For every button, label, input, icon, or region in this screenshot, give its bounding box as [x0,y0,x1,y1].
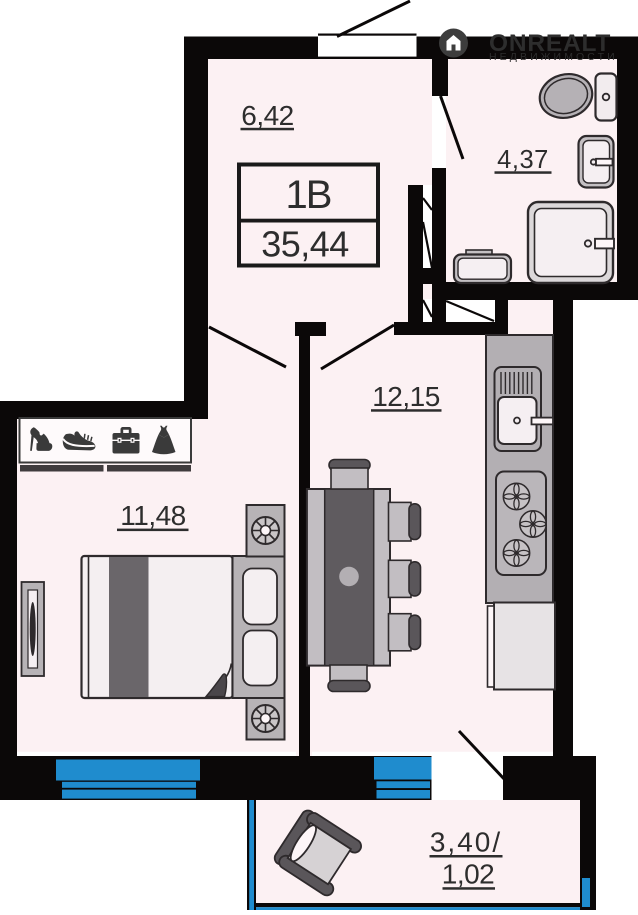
svg-text:35,44: 35,44 [261,224,349,265]
svg-text:6,42: 6,42 [241,100,294,131]
svg-text:НЕДВИЖИМОСТИ: НЕДВИЖИМОСТИ [489,51,618,63]
svg-text:11,48: 11,48 [120,500,186,531]
svg-text:1B: 1B [286,173,331,217]
svg-text:4,37: 4,37 [497,146,549,174]
svg-text:3,40/: 3,40/ [430,827,502,858]
svg-text:1,02: 1,02 [442,859,495,890]
svg-text:12,15: 12,15 [372,381,440,412]
